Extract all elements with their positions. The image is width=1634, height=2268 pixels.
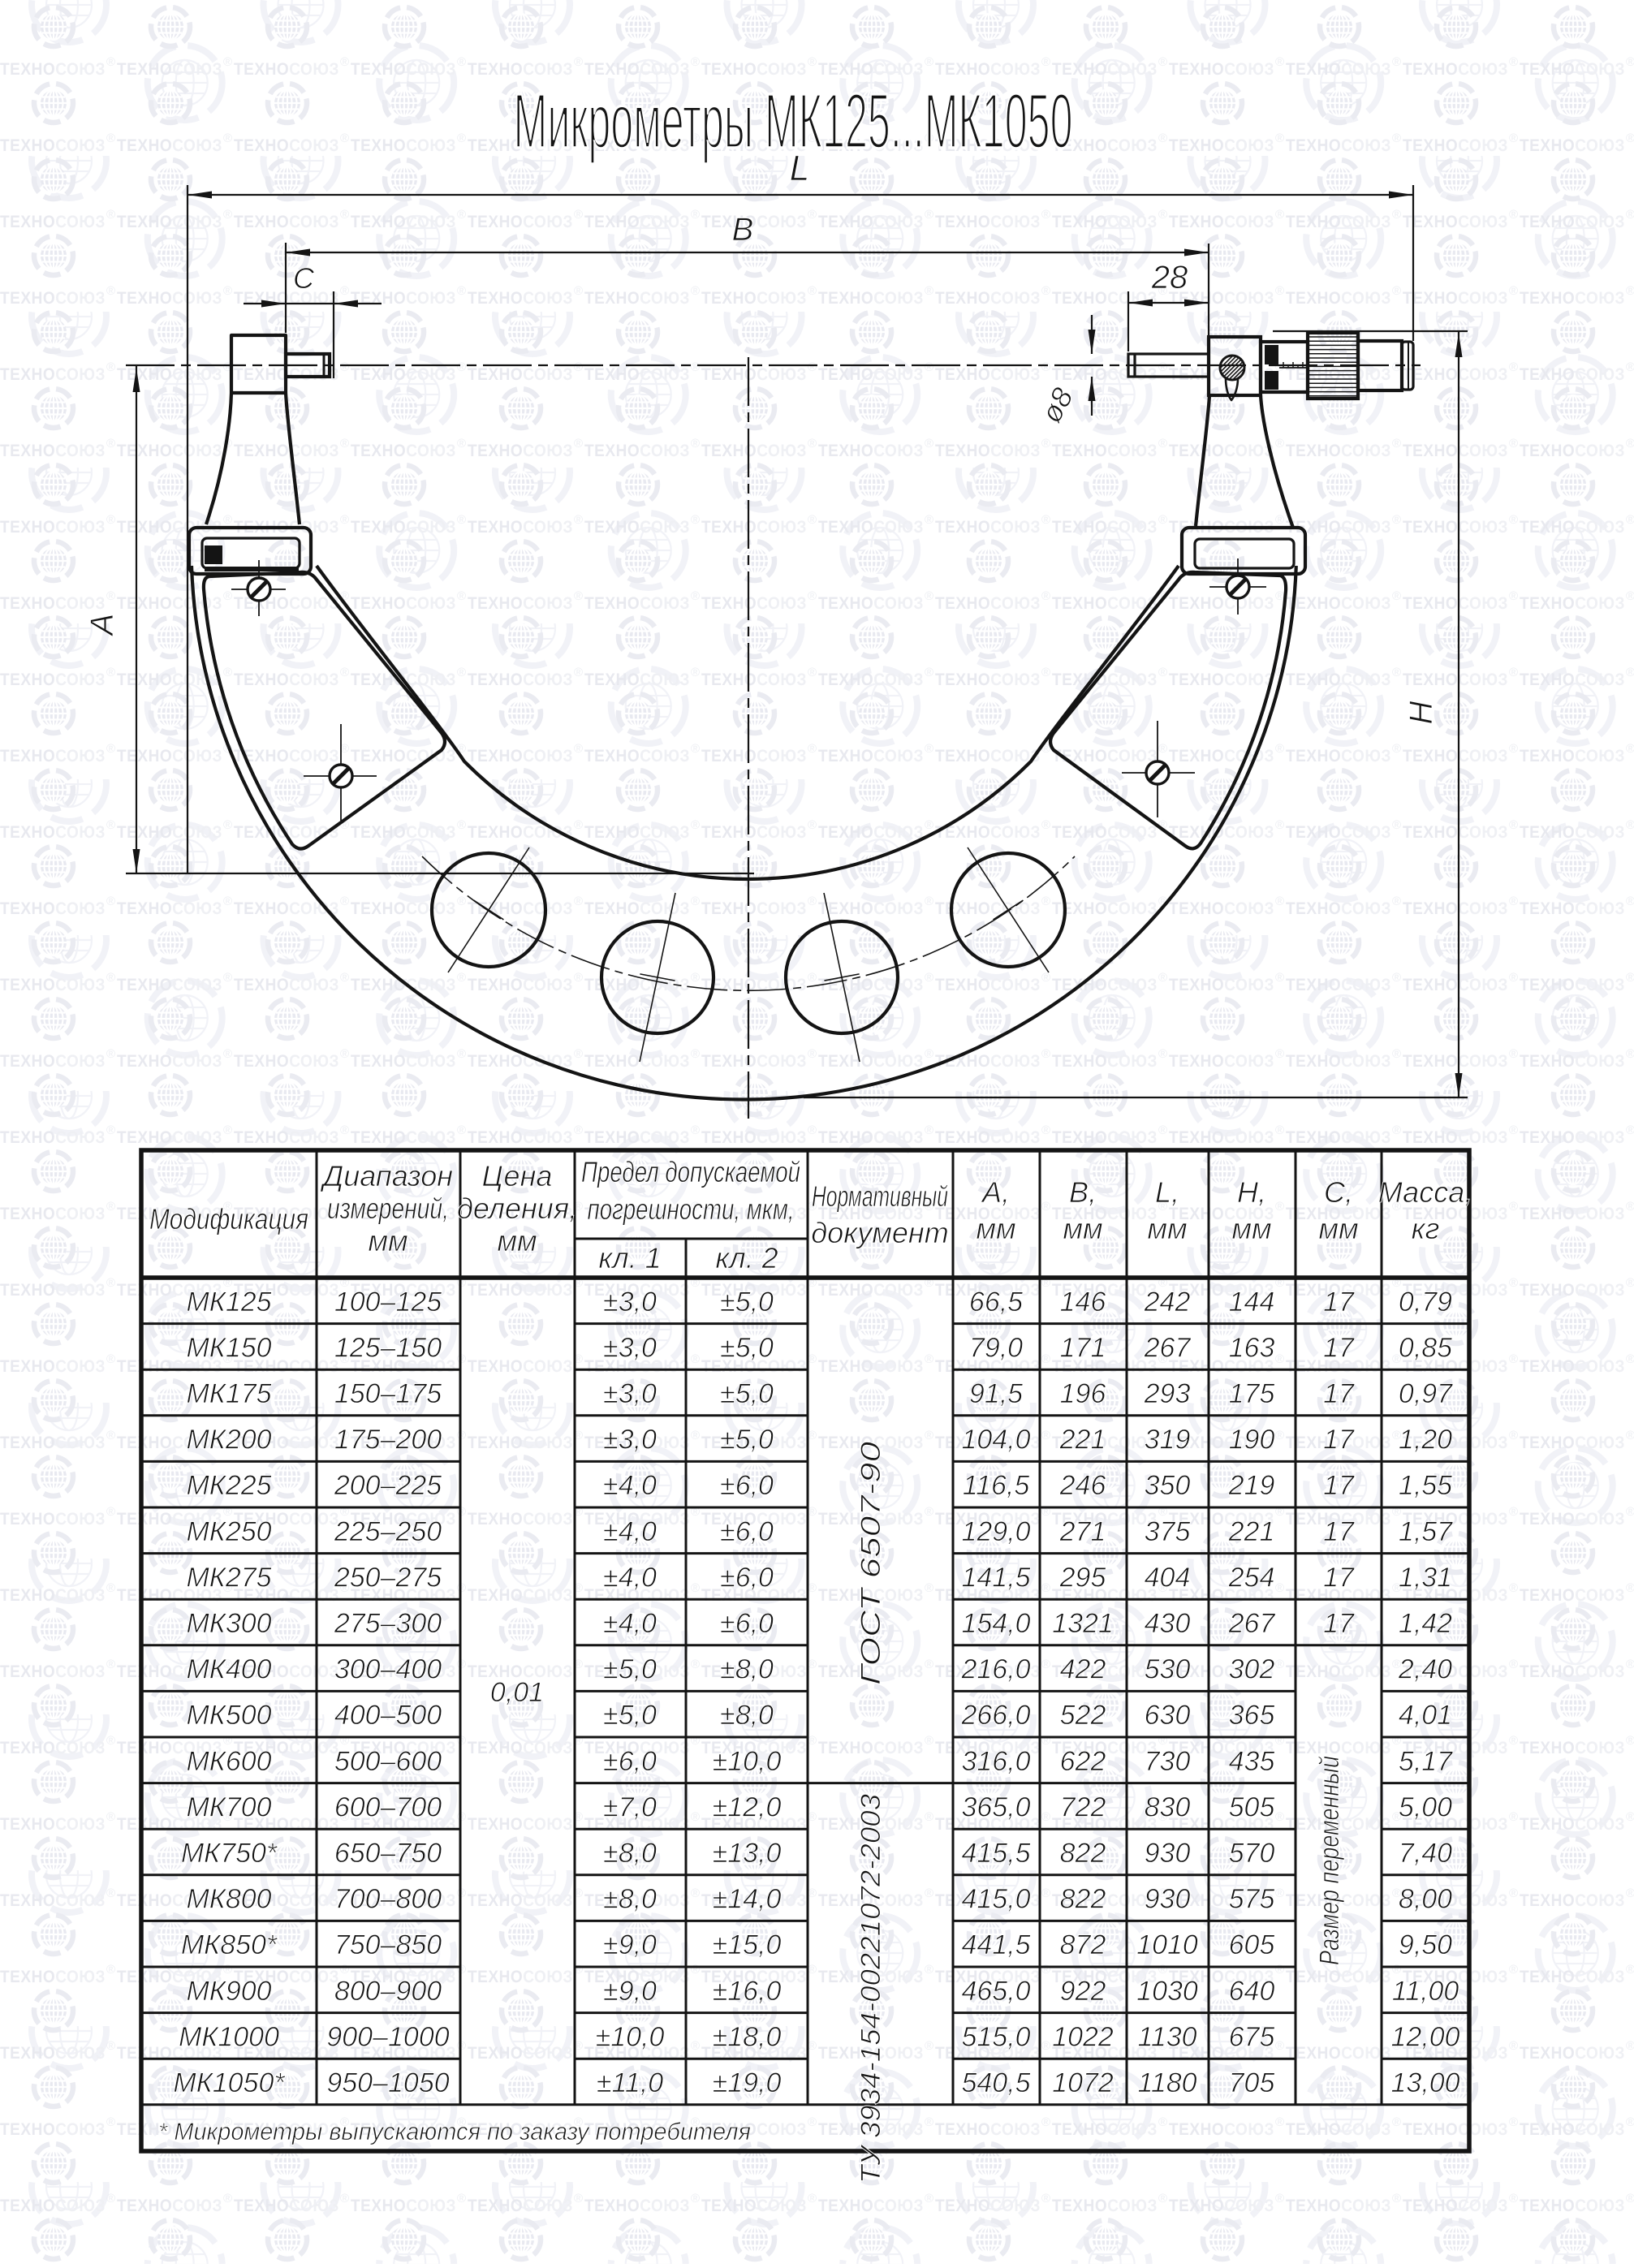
svg-text:МК500: МК500	[186, 1700, 271, 1731]
svg-text:B: B	[732, 212, 754, 248]
svg-text:319: 319	[1145, 1425, 1191, 1455]
svg-text:500–600: 500–600	[334, 1746, 442, 1777]
svg-text:±5,0: ±5,0	[603, 1700, 657, 1731]
svg-text:±16,0: ±16,0	[713, 1976, 782, 2007]
svg-text:242: 242	[1144, 1287, 1191, 1317]
svg-text:267: 267	[1144, 1332, 1192, 1363]
svg-text:±9,0: ±9,0	[603, 1930, 657, 1960]
svg-text:271: 271	[1059, 1516, 1106, 1547]
svg-text:465,0: 465,0	[961, 1976, 1030, 2007]
svg-text:МК600: МК600	[186, 1746, 271, 1777]
svg-text:630: 630	[1145, 1700, 1191, 1731]
svg-text:146: 146	[1060, 1287, 1106, 1317]
svg-text:705: 705	[1229, 2068, 1275, 2098]
svg-text:0,01: 0,01	[490, 1677, 544, 1708]
svg-text:650–750: 650–750	[334, 1838, 442, 1869]
svg-text:мм: мм	[368, 1224, 407, 1257]
svg-text:1072: 1072	[1052, 2068, 1114, 2098]
svg-text:17: 17	[1323, 1516, 1355, 1547]
svg-text:МК700: МК700	[186, 1792, 271, 1822]
svg-text:1,55: 1,55	[1399, 1470, 1452, 1501]
svg-text:±6,0: ±6,0	[720, 1516, 774, 1547]
svg-text:540,5: 540,5	[961, 2068, 1030, 2098]
svg-text:267: 267	[1228, 1608, 1276, 1639]
svg-text:кг: кг	[1412, 1212, 1440, 1245]
svg-text:±10,0: ±10,0	[596, 2021, 665, 2052]
svg-text:922: 922	[1060, 1976, 1106, 2007]
svg-text:17: 17	[1323, 1608, 1355, 1639]
svg-text:±3,0: ±3,0	[603, 1287, 657, 1317]
svg-text:±6,0: ±6,0	[720, 1608, 774, 1639]
svg-text:мм: мм	[976, 1212, 1015, 1245]
svg-text:МК1050*: МК1050*	[173, 2068, 286, 2098]
svg-text:±3,0: ±3,0	[603, 1425, 657, 1455]
svg-text:мм: мм	[497, 1224, 537, 1257]
svg-text:МК275: МК275	[186, 1562, 271, 1593]
svg-text:221: 221	[1228, 1516, 1275, 1547]
svg-text:С,: С,	[1324, 1175, 1353, 1209]
svg-text:±4,0: ±4,0	[603, 1608, 657, 1639]
svg-text:316,0: 316,0	[961, 1746, 1030, 1777]
svg-text:Модификация: Модификация	[149, 1202, 308, 1235]
svg-text:505: 505	[1229, 1792, 1275, 1822]
svg-text:415,5: 415,5	[961, 1838, 1030, 1869]
svg-text:221: 221	[1059, 1425, 1106, 1455]
svg-text:200–225: 200–225	[334, 1470, 442, 1501]
svg-text:375: 375	[1145, 1516, 1191, 1547]
svg-text:1,20: 1,20	[1399, 1425, 1452, 1455]
svg-text:17: 17	[1323, 1562, 1355, 1593]
svg-text:640: 640	[1229, 1976, 1275, 2007]
svg-text:±18,0: ±18,0	[713, 2021, 782, 2052]
svg-text:погрешности, мкм,: погрешности, мкм,	[588, 1192, 795, 1226]
svg-text:МК250: МК250	[186, 1516, 271, 1547]
svg-text:175: 175	[1229, 1378, 1275, 1409]
svg-text:530: 530	[1145, 1654, 1191, 1685]
svg-text:930: 930	[1145, 1884, 1191, 1915]
svg-text:100–125: 100–125	[334, 1287, 442, 1317]
svg-text:163: 163	[1229, 1332, 1275, 1363]
svg-text:±5,0: ±5,0	[720, 1332, 774, 1363]
svg-text:Цена: Цена	[482, 1159, 553, 1192]
svg-text:17: 17	[1323, 1378, 1355, 1409]
svg-text:404: 404	[1145, 1562, 1191, 1593]
svg-text:430: 430	[1145, 1608, 1191, 1639]
svg-text:±6,0: ±6,0	[720, 1470, 774, 1501]
svg-text:17: 17	[1323, 1470, 1355, 1501]
svg-text:400–500: 400–500	[334, 1700, 442, 1731]
svg-text:±9,0: ±9,0	[603, 1976, 657, 2007]
svg-text:±8,0: ±8,0	[720, 1654, 774, 1685]
svg-text:ТУ 3934-154-00221072-2003: ТУ 3934-154-00221072-2003	[856, 1794, 886, 2184]
svg-text:7,40: 7,40	[1399, 1838, 1452, 1869]
svg-text:Масса,: Масса,	[1378, 1175, 1472, 1209]
svg-text:116,5: 116,5	[963, 1470, 1030, 1501]
svg-text:5,17: 5,17	[1399, 1746, 1453, 1777]
svg-text:365,0: 365,0	[961, 1792, 1030, 1822]
svg-text:МК175: МК175	[186, 1378, 271, 1409]
svg-text:17: 17	[1323, 1332, 1355, 1363]
svg-text:±5,0: ±5,0	[720, 1425, 774, 1455]
svg-text:кл. 1: кл. 1	[598, 1241, 661, 1274]
svg-text:H: H	[1403, 701, 1439, 724]
svg-text:266,0: 266,0	[960, 1700, 1030, 1731]
svg-text:17: 17	[1323, 1287, 1355, 1317]
svg-text:171: 171	[1060, 1332, 1106, 1363]
svg-text:Диапазон: Диапазон	[320, 1159, 453, 1192]
svg-text:МК400: МК400	[186, 1654, 271, 1685]
svg-text:±11,0: ±11,0	[597, 2068, 663, 2098]
svg-text:МК150: МК150	[186, 1332, 271, 1363]
svg-text:1,57: 1,57	[1399, 1516, 1453, 1547]
svg-text:9,50: 9,50	[1399, 1930, 1452, 1960]
svg-text:216,0: 216,0	[960, 1654, 1030, 1685]
svg-text:125–150: 125–150	[334, 1332, 442, 1363]
svg-text:822: 822	[1060, 1838, 1106, 1869]
svg-text:154,0: 154,0	[961, 1608, 1030, 1639]
svg-text:570: 570	[1229, 1838, 1275, 1869]
svg-text:605: 605	[1229, 1930, 1275, 1960]
svg-text:мм: мм	[1063, 1212, 1102, 1245]
svg-text:L: L	[790, 149, 809, 188]
svg-text:* Микрометры выпускаются по за: * Микрометры выпускаются по заказу потре…	[158, 2119, 751, 2145]
svg-text:196: 196	[1060, 1378, 1106, 1409]
svg-text:кл. 2: кл. 2	[715, 1241, 778, 1274]
svg-text:141,5: 141,5	[961, 1562, 1030, 1593]
svg-text:800–900: 800–900	[334, 1976, 442, 2007]
svg-text:730: 730	[1145, 1746, 1191, 1777]
svg-text:±6,0: ±6,0	[720, 1562, 774, 1593]
svg-text:МК800: МК800	[186, 1884, 271, 1915]
svg-text:950–1050: 950–1050	[326, 2068, 449, 2098]
svg-text:A: A	[84, 614, 120, 637]
svg-text:66,5: 66,5	[969, 1287, 1023, 1317]
svg-text:L,: L,	[1155, 1175, 1179, 1209]
svg-text:515,0: 515,0	[961, 2021, 1030, 2052]
svg-text:±5,0: ±5,0	[603, 1654, 657, 1685]
svg-text:МК900: МК900	[186, 1976, 271, 2007]
svg-text:350: 350	[1145, 1470, 1191, 1501]
svg-text:300–400: 300–400	[334, 1654, 442, 1685]
svg-text:МК225: МК225	[186, 1470, 271, 1501]
svg-text:МК1000: МК1000	[179, 2021, 279, 2052]
svg-text:1180: 1180	[1137, 2068, 1196, 2098]
svg-text:А,: А,	[981, 1175, 1010, 1209]
svg-text:1030: 1030	[1136, 1976, 1198, 2007]
svg-text:750–850: 750–850	[334, 1930, 442, 1960]
svg-text:8,00: 8,00	[1399, 1884, 1452, 1915]
svg-text:документ: документ	[811, 1216, 948, 1249]
svg-text:600–700: 600–700	[334, 1792, 442, 1822]
svg-text:±14,0: ±14,0	[713, 1884, 782, 1915]
svg-text:0,97: 0,97	[1399, 1378, 1453, 1409]
svg-text:мм: мм	[1231, 1212, 1271, 1245]
svg-text:1321: 1321	[1052, 1608, 1114, 1639]
svg-text:1,31: 1,31	[1399, 1562, 1452, 1593]
svg-text:722: 722	[1060, 1792, 1106, 1822]
svg-text:11,00: 11,00	[1392, 1976, 1459, 2007]
svg-text:±12,0: ±12,0	[713, 1792, 782, 1822]
svg-text:129,0: 129,0	[961, 1516, 1030, 1547]
svg-text:±13,0: ±13,0	[713, 1838, 782, 1869]
svg-text:МК125: МК125	[186, 1287, 271, 1317]
svg-text:±5,0: ±5,0	[720, 1287, 774, 1317]
svg-text:±7,0: ±7,0	[603, 1792, 657, 1822]
svg-text:822: 822	[1060, 1884, 1106, 1915]
svg-text:4,01: 4,01	[1399, 1700, 1452, 1731]
svg-text:5,00: 5,00	[1399, 1792, 1452, 1822]
svg-text:±8,0: ±8,0	[603, 1884, 657, 1915]
svg-text:441,5: 441,5	[961, 1930, 1030, 1960]
svg-text:435: 435	[1229, 1746, 1275, 1777]
svg-text:1010: 1010	[1136, 1930, 1198, 1960]
svg-text:±8,0: ±8,0	[603, 1838, 657, 1869]
svg-text:13,00: 13,00	[1390, 2068, 1459, 2098]
svg-text:Нормативный: Нормативный	[812, 1179, 948, 1213]
svg-text:Размер переменный: Размер переменный	[1314, 1756, 1345, 1965]
svg-text:1022: 1022	[1052, 2021, 1114, 2052]
svg-text:±3,0: ±3,0	[603, 1332, 657, 1363]
svg-text:12,00: 12,00	[1390, 2021, 1459, 2052]
svg-text:830: 830	[1145, 1792, 1191, 1822]
svg-text:±5,0: ±5,0	[720, 1378, 774, 1409]
svg-text:МК200: МК200	[186, 1425, 271, 1455]
svg-text:422: 422	[1060, 1654, 1106, 1685]
svg-text:872: 872	[1060, 1930, 1106, 1960]
svg-text:±4,0: ±4,0	[603, 1516, 657, 1547]
svg-text:ГОСТ 6507-90: ГОСТ 6507-90	[856, 1442, 886, 1685]
svg-text:±6,0: ±6,0	[603, 1746, 657, 1777]
svg-text:225–250: 225–250	[334, 1516, 442, 1547]
svg-text:0,79: 0,79	[1399, 1287, 1452, 1317]
svg-text:250–275: 250–275	[334, 1562, 442, 1593]
svg-text:±8,0: ±8,0	[720, 1700, 774, 1731]
svg-text:В,: В,	[1069, 1175, 1097, 1209]
svg-text:150–175: 150–175	[334, 1378, 442, 1409]
svg-text:мм: мм	[1318, 1212, 1358, 1245]
svg-text:79,0: 79,0	[969, 1332, 1023, 1363]
svg-text:Предел допускаемой: Предел допускаемой	[581, 1155, 800, 1188]
svg-text:415,0: 415,0	[961, 1884, 1030, 1915]
svg-text:измерений,: измерений,	[327, 1192, 449, 1225]
svg-text:деления,: деления,	[457, 1192, 577, 1225]
svg-text:675: 675	[1229, 2021, 1275, 2052]
svg-text:1,42: 1,42	[1399, 1608, 1452, 1639]
svg-text:295: 295	[1059, 1562, 1106, 1593]
svg-text:365: 365	[1229, 1700, 1275, 1731]
svg-text:575: 575	[1229, 1884, 1275, 1915]
svg-text:МК850*: МК850*	[181, 1930, 278, 1960]
svg-text:17: 17	[1323, 1425, 1355, 1455]
svg-text:±19,0: ±19,0	[713, 2068, 782, 2098]
svg-text:2,40: 2,40	[1398, 1654, 1452, 1685]
svg-text:293: 293	[1144, 1378, 1191, 1409]
svg-text:мм: мм	[1147, 1212, 1187, 1245]
svg-text:91,5: 91,5	[969, 1378, 1023, 1409]
svg-text:900–1000: 900–1000	[326, 2021, 449, 2052]
svg-text:Н,: Н,	[1237, 1175, 1266, 1209]
svg-text:190: 190	[1229, 1425, 1275, 1455]
svg-text:±3,0: ±3,0	[603, 1378, 657, 1409]
svg-text:930: 930	[1145, 1838, 1191, 1869]
svg-text:104,0: 104,0	[961, 1425, 1030, 1455]
svg-text:0,85: 0,85	[1399, 1332, 1452, 1363]
svg-text:246: 246	[1059, 1470, 1106, 1501]
svg-text:МК300: МК300	[186, 1608, 271, 1639]
svg-text:±4,0: ±4,0	[603, 1562, 657, 1593]
svg-text:1130: 1130	[1137, 2021, 1196, 2052]
svg-text:144: 144	[1229, 1287, 1275, 1317]
svg-text:700–800: 700–800	[334, 1884, 442, 1915]
svg-text:C: C	[293, 261, 315, 295]
svg-text:175–200: 175–200	[334, 1425, 442, 1455]
svg-text:275–300: 275–300	[334, 1608, 442, 1639]
svg-text:±15,0: ±15,0	[713, 1930, 782, 1960]
svg-text:219: 219	[1228, 1470, 1275, 1501]
svg-text:254: 254	[1228, 1562, 1275, 1593]
svg-text:622: 622	[1060, 1746, 1106, 1777]
svg-text:302: 302	[1229, 1654, 1275, 1685]
svg-text:МК750*: МК750*	[181, 1838, 278, 1869]
svg-text:522: 522	[1060, 1700, 1106, 1731]
svg-text:±4,0: ±4,0	[603, 1470, 657, 1501]
svg-text:28: 28	[1151, 260, 1188, 295]
svg-text:±10,0: ±10,0	[713, 1746, 782, 1777]
